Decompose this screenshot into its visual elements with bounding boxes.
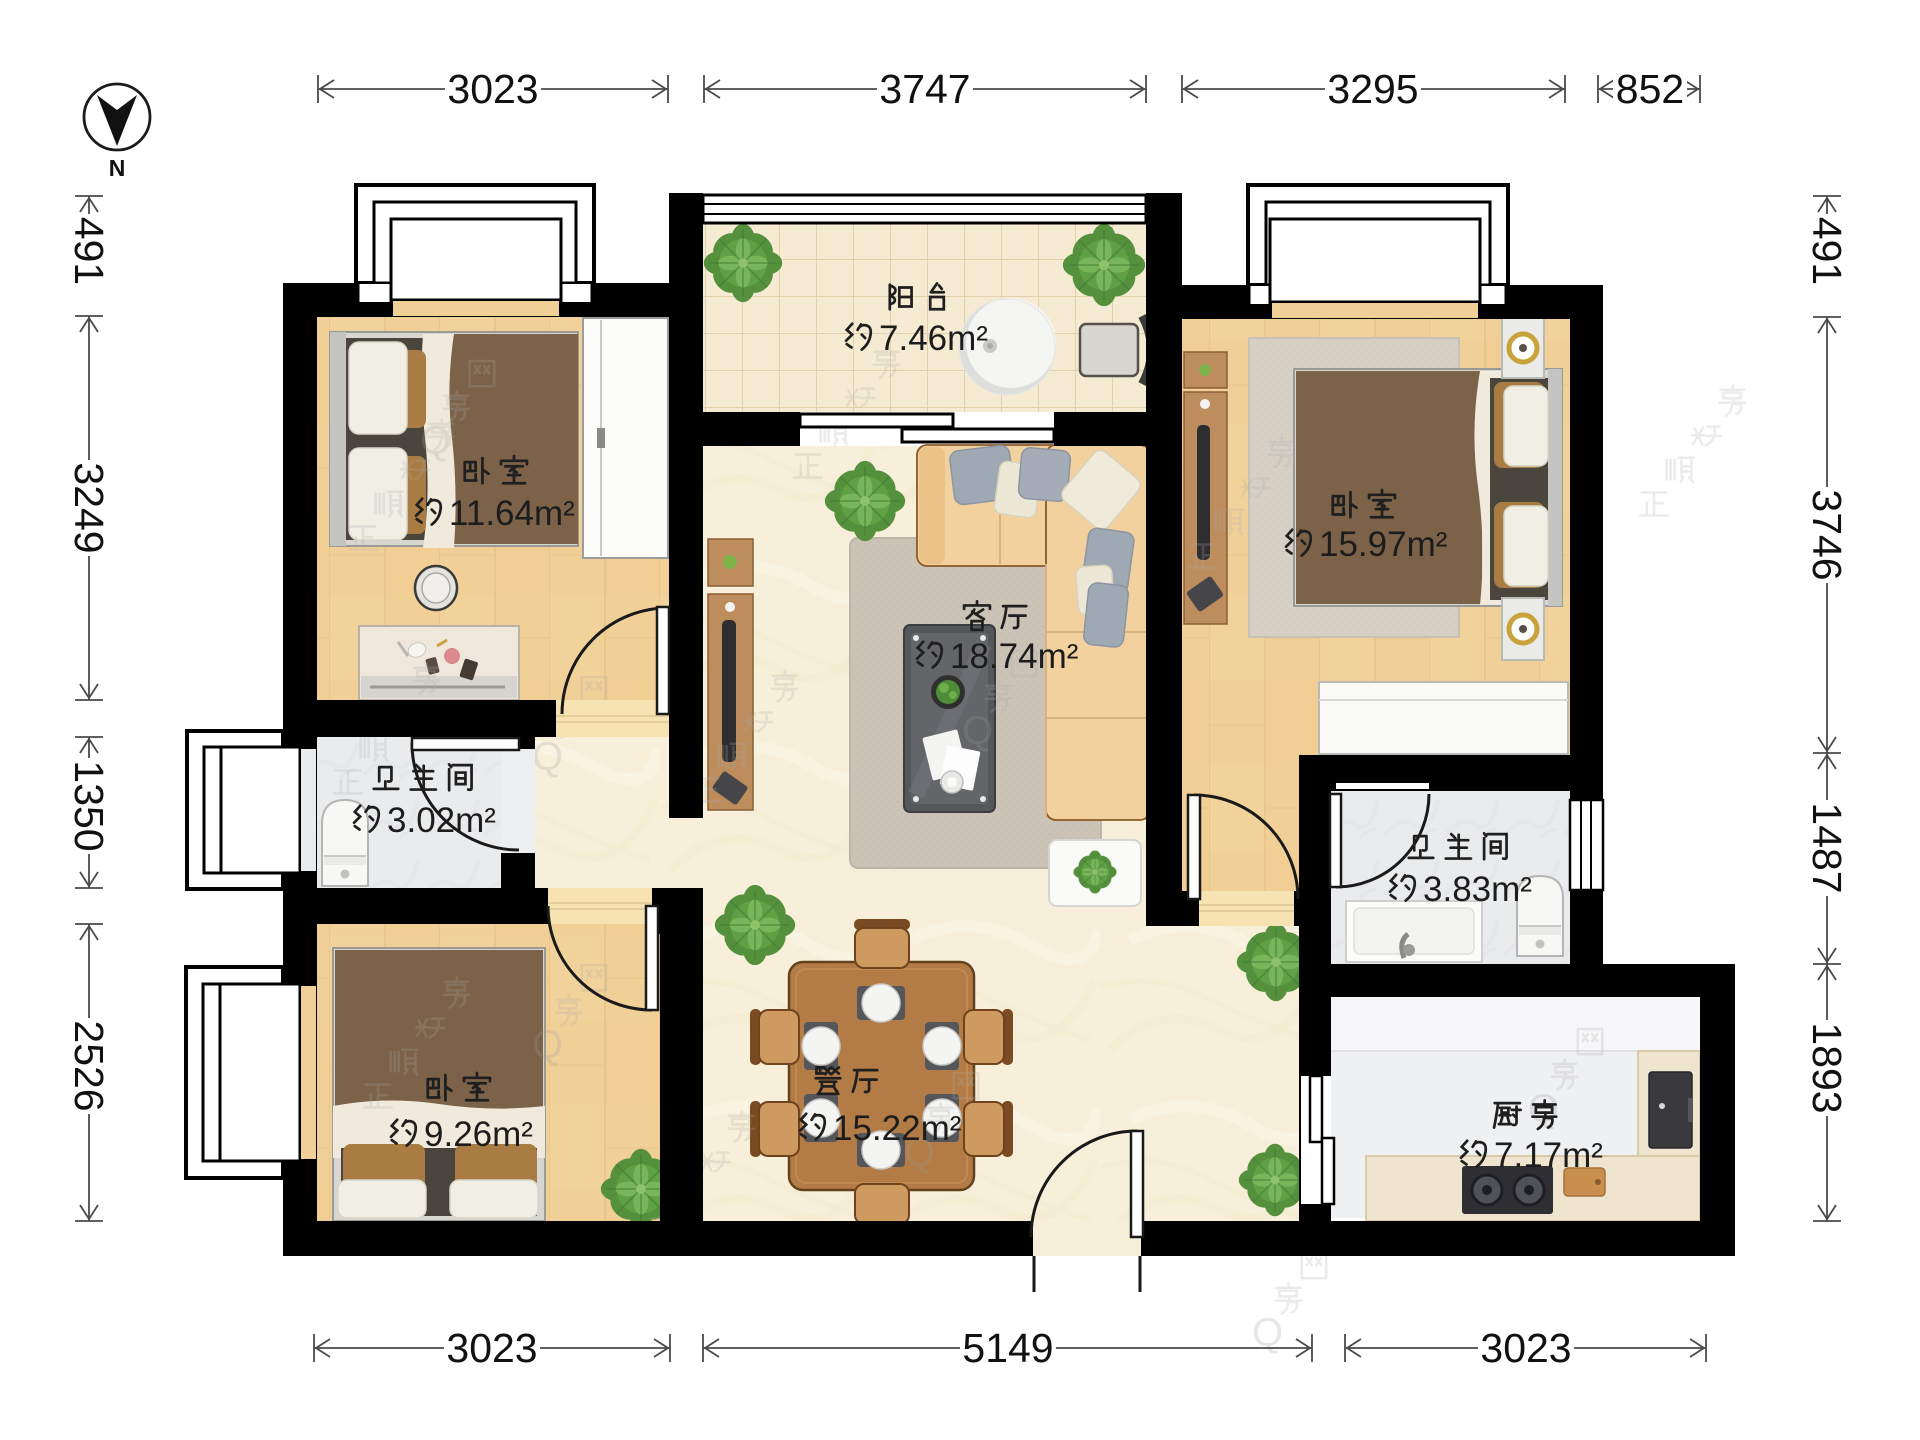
svg-text:Q: Q xyxy=(420,419,451,463)
svg-text:2526: 2526 xyxy=(66,1020,112,1111)
svg-text:11.64m²: 11.64m² xyxy=(449,494,575,533)
svg-text:3295: 3295 xyxy=(1327,66,1418,112)
svg-text:18.74m²: 18.74m² xyxy=(950,637,1078,676)
svg-text:3.02m²: 3.02m² xyxy=(387,801,496,840)
svg-text:Q: Q xyxy=(532,735,563,779)
svg-text:3023: 3023 xyxy=(1480,1325,1571,1371)
svg-text:3747: 3747 xyxy=(879,66,970,112)
svg-text:1893: 1893 xyxy=(1804,1022,1850,1113)
svg-text:Q: Q xyxy=(962,709,993,753)
svg-text:7.17m²: 7.17m² xyxy=(1494,1136,1603,1175)
svg-text:852: 852 xyxy=(1616,66,1684,112)
svg-text:15.22m²: 15.22m² xyxy=(833,1109,961,1148)
svg-text:491: 491 xyxy=(1804,217,1850,285)
svg-text:1487: 1487 xyxy=(1804,802,1850,893)
svg-text:7.46m²: 7.46m² xyxy=(879,319,988,358)
svg-text:1350: 1350 xyxy=(66,760,112,851)
svg-text:3746: 3746 xyxy=(1804,489,1850,580)
svg-text:5149: 5149 xyxy=(962,1325,1053,1371)
svg-text:3023: 3023 xyxy=(446,1325,537,1371)
svg-text:3249: 3249 xyxy=(66,462,112,553)
svg-text:Q: Q xyxy=(532,1023,563,1067)
svg-text:3023: 3023 xyxy=(447,66,538,112)
svg-text:15.97m²: 15.97m² xyxy=(1319,525,1447,564)
svg-text:3.83m²: 3.83m² xyxy=(1423,870,1532,909)
svg-text:N: N xyxy=(109,155,126,181)
svg-text:9.26m²: 9.26m² xyxy=(424,1115,533,1154)
svg-text:491: 491 xyxy=(66,217,112,285)
